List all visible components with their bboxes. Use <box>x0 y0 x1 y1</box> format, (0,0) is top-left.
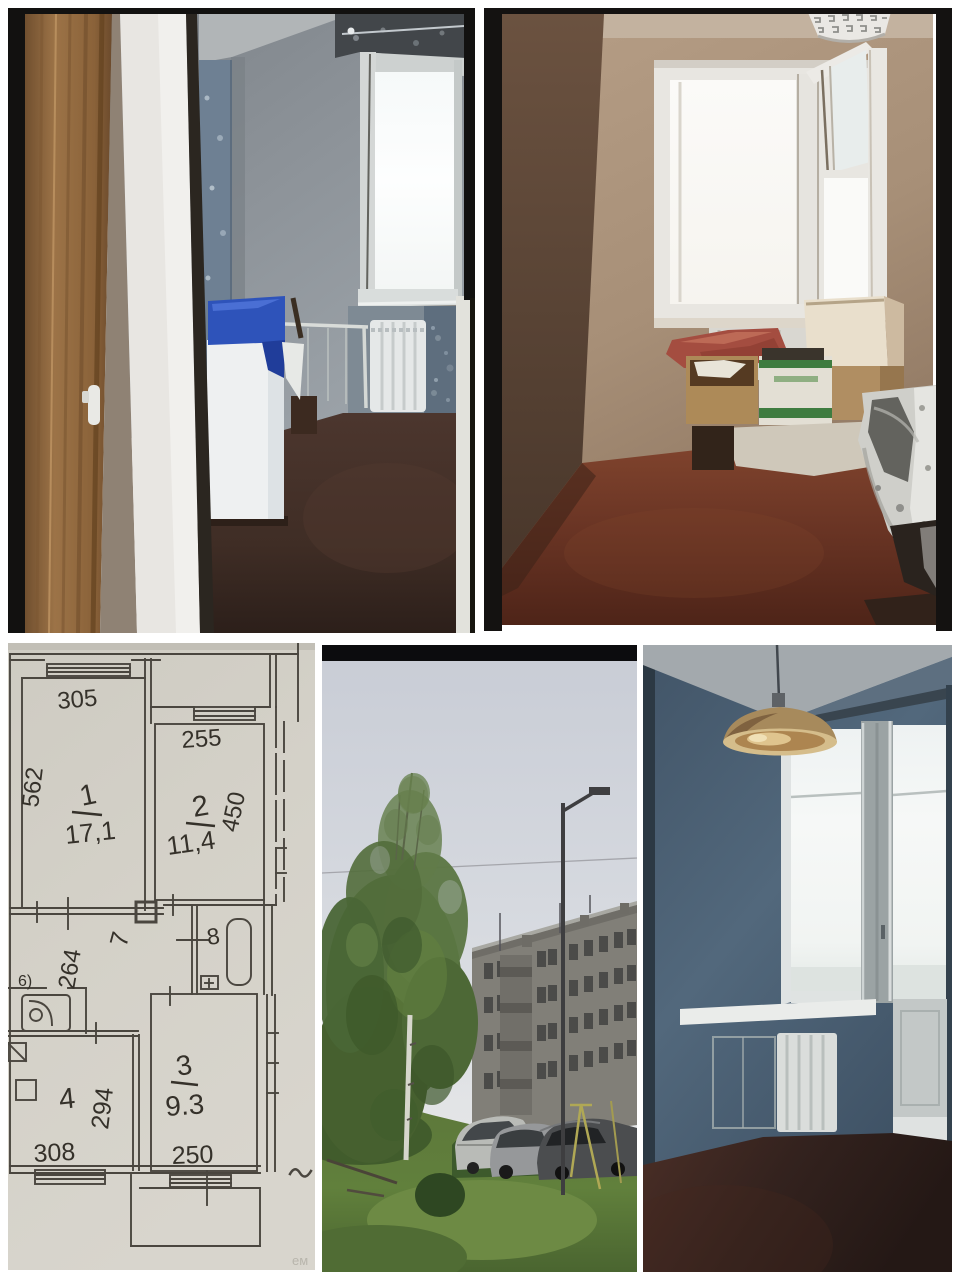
svg-text:305: 305 <box>56 685 98 715</box>
svg-text:294: 294 <box>86 1086 119 1131</box>
svg-text:6): 6) <box>18 973 32 990</box>
svg-text:4: 4 <box>57 1082 76 1116</box>
svg-text:562: 562 <box>17 766 49 809</box>
svg-text:308: 308 <box>33 1138 76 1168</box>
svg-text:17,1: 17,1 <box>63 815 116 850</box>
svg-text:255: 255 <box>181 724 223 754</box>
svg-text:9.3: 9.3 <box>164 1088 205 1122</box>
svg-text:ем: ем <box>292 1253 308 1268</box>
svg-text:250: 250 <box>171 1141 214 1170</box>
